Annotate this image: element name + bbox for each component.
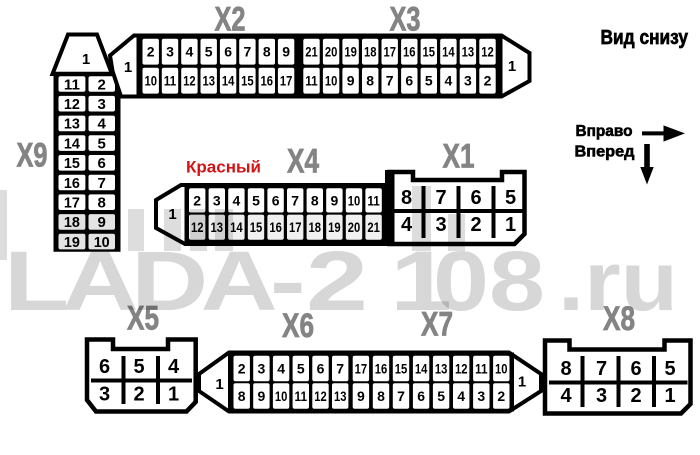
svg-text:9: 9: [347, 73, 355, 89]
svg-text:5: 5: [252, 192, 260, 208]
svg-text:5: 5: [297, 361, 305, 377]
svg-text:16: 16: [261, 73, 274, 89]
svg-text:4: 4: [98, 116, 107, 133]
svg-text:X9: X9: [17, 137, 48, 175]
svg-text:4: 4: [233, 192, 241, 208]
svg-text:3: 3: [464, 73, 472, 89]
svg-text:9: 9: [258, 388, 266, 404]
svg-text:12: 12: [183, 73, 196, 89]
svg-text:5: 5: [437, 388, 445, 404]
svg-text:9: 9: [331, 192, 339, 208]
svg-text:16: 16: [64, 175, 80, 192]
svg-text:11: 11: [475, 361, 488, 377]
svg-text:11: 11: [64, 76, 80, 93]
svg-text:3: 3: [213, 192, 221, 208]
svg-text:6: 6: [272, 192, 280, 208]
svg-text:12: 12: [455, 361, 468, 377]
svg-text:X2: X2: [215, 1, 246, 39]
svg-text:7: 7: [386, 73, 394, 89]
svg-text:6: 6: [98, 155, 106, 172]
svg-text:13: 13: [202, 73, 215, 89]
svg-text:.ru: .ru: [558, 234, 678, 328]
svg-text:10: 10: [144, 73, 157, 89]
svg-text:7: 7: [336, 361, 344, 377]
svg-text:14: 14: [415, 361, 428, 377]
svg-text:19: 19: [344, 44, 357, 60]
svg-text:6: 6: [224, 44, 232, 60]
svg-text:2: 2: [306, 234, 368, 328]
svg-text:7: 7: [397, 388, 405, 404]
svg-text:18: 18: [364, 44, 377, 60]
svg-text:14: 14: [442, 44, 455, 60]
svg-text:3: 3: [99, 384, 110, 406]
svg-text:10: 10: [495, 361, 508, 377]
svg-text:7: 7: [291, 192, 299, 208]
svg-text:13: 13: [435, 361, 448, 377]
svg-text:12: 12: [314, 388, 327, 404]
svg-text:10: 10: [275, 388, 288, 404]
svg-text:15: 15: [423, 44, 436, 60]
svg-text:8: 8: [263, 44, 271, 60]
svg-text:16: 16: [375, 361, 388, 377]
svg-text:11: 11: [305, 73, 318, 89]
svg-text:5: 5: [505, 187, 516, 209]
svg-text:3: 3: [477, 388, 485, 404]
svg-text:1: 1: [215, 376, 223, 393]
svg-text:Вперед: Вперед: [575, 144, 635, 161]
svg-text:6: 6: [470, 187, 481, 209]
svg-text:4: 4: [168, 356, 180, 378]
svg-text:X4: X4: [287, 143, 319, 181]
svg-text:Красный: Красный: [186, 159, 261, 177]
svg-text:7: 7: [244, 44, 252, 60]
svg-text:X3: X3: [390, 1, 421, 39]
svg-text:14: 14: [64, 135, 81, 152]
svg-text:08: 08: [433, 234, 545, 328]
svg-text:16: 16: [403, 44, 416, 60]
svg-text:9: 9: [357, 388, 365, 404]
svg-text:6: 6: [317, 361, 325, 377]
svg-text:X1: X1: [443, 138, 475, 176]
svg-text:15: 15: [64, 155, 80, 172]
svg-text:20: 20: [325, 44, 338, 60]
svg-text:Вправо: Вправо: [576, 123, 633, 140]
svg-text:13: 13: [462, 44, 475, 60]
svg-text:2: 2: [630, 385, 641, 407]
svg-text:4: 4: [457, 388, 465, 404]
svg-text:11: 11: [295, 388, 308, 404]
svg-text:5: 5: [205, 44, 213, 60]
svg-text:4: 4: [186, 44, 194, 60]
svg-text:4: 4: [560, 385, 572, 407]
svg-text:11: 11: [367, 192, 380, 208]
svg-text:1: 1: [518, 374, 526, 391]
svg-text:5: 5: [425, 73, 433, 89]
svg-text:1: 1: [505, 214, 516, 236]
svg-text:21: 21: [305, 44, 318, 60]
svg-text:8: 8: [560, 358, 571, 380]
svg-text:11: 11: [164, 73, 177, 89]
svg-text:6: 6: [405, 73, 413, 89]
svg-text:13: 13: [64, 116, 80, 133]
svg-text:5: 5: [664, 358, 675, 380]
svg-text:15: 15: [241, 73, 254, 89]
svg-text:2: 2: [147, 44, 155, 60]
svg-text:5: 5: [133, 356, 144, 378]
svg-text:14: 14: [222, 73, 235, 89]
svg-text:9: 9: [282, 44, 290, 60]
svg-text:2: 2: [484, 73, 492, 89]
svg-text:2: 2: [98, 76, 106, 93]
svg-text:10: 10: [348, 192, 361, 208]
svg-text:1: 1: [82, 51, 90, 68]
svg-text:12: 12: [481, 44, 494, 60]
svg-text:6: 6: [630, 358, 641, 380]
svg-text:8: 8: [311, 192, 319, 208]
svg-text:3: 3: [166, 44, 174, 60]
svg-text:17: 17: [64, 195, 80, 212]
svg-text:3: 3: [258, 361, 266, 377]
svg-text:5: 5: [98, 135, 106, 152]
svg-text:1: 1: [168, 384, 179, 406]
svg-text:17: 17: [355, 361, 368, 377]
svg-text:8: 8: [98, 195, 106, 212]
svg-text:3: 3: [435, 214, 446, 236]
svg-text:1: 1: [664, 385, 675, 407]
svg-text:8: 8: [401, 187, 412, 209]
svg-text:7: 7: [98, 175, 106, 192]
svg-text:2: 2: [470, 214, 481, 236]
svg-text:17: 17: [383, 44, 396, 60]
svg-text:7: 7: [435, 187, 446, 209]
svg-text:2: 2: [193, 192, 201, 208]
svg-text:8: 8: [366, 73, 374, 89]
svg-text:13: 13: [334, 388, 347, 404]
svg-text:2: 2: [133, 384, 144, 406]
svg-text:17: 17: [280, 73, 293, 89]
svg-text:2: 2: [238, 361, 246, 377]
svg-text:2: 2: [497, 388, 505, 404]
svg-text:3: 3: [98, 96, 106, 113]
svg-text:8: 8: [377, 388, 385, 404]
svg-text:3: 3: [596, 385, 607, 407]
svg-text:1: 1: [508, 58, 516, 75]
svg-text:4: 4: [277, 361, 285, 377]
svg-text:15: 15: [395, 361, 408, 377]
svg-text:Вид снизу: Вид снизу: [601, 27, 689, 49]
svg-text:10: 10: [325, 73, 338, 89]
svg-text:4: 4: [401, 214, 413, 236]
svg-text:LADA-: LADA-: [4, 234, 302, 328]
svg-text:7: 7: [596, 358, 607, 380]
svg-text:6: 6: [99, 356, 110, 378]
svg-text:4: 4: [445, 73, 453, 89]
svg-text:12: 12: [64, 96, 80, 113]
svg-text:1: 1: [124, 59, 132, 76]
svg-text:6: 6: [417, 388, 425, 404]
svg-text:8: 8: [238, 388, 246, 404]
